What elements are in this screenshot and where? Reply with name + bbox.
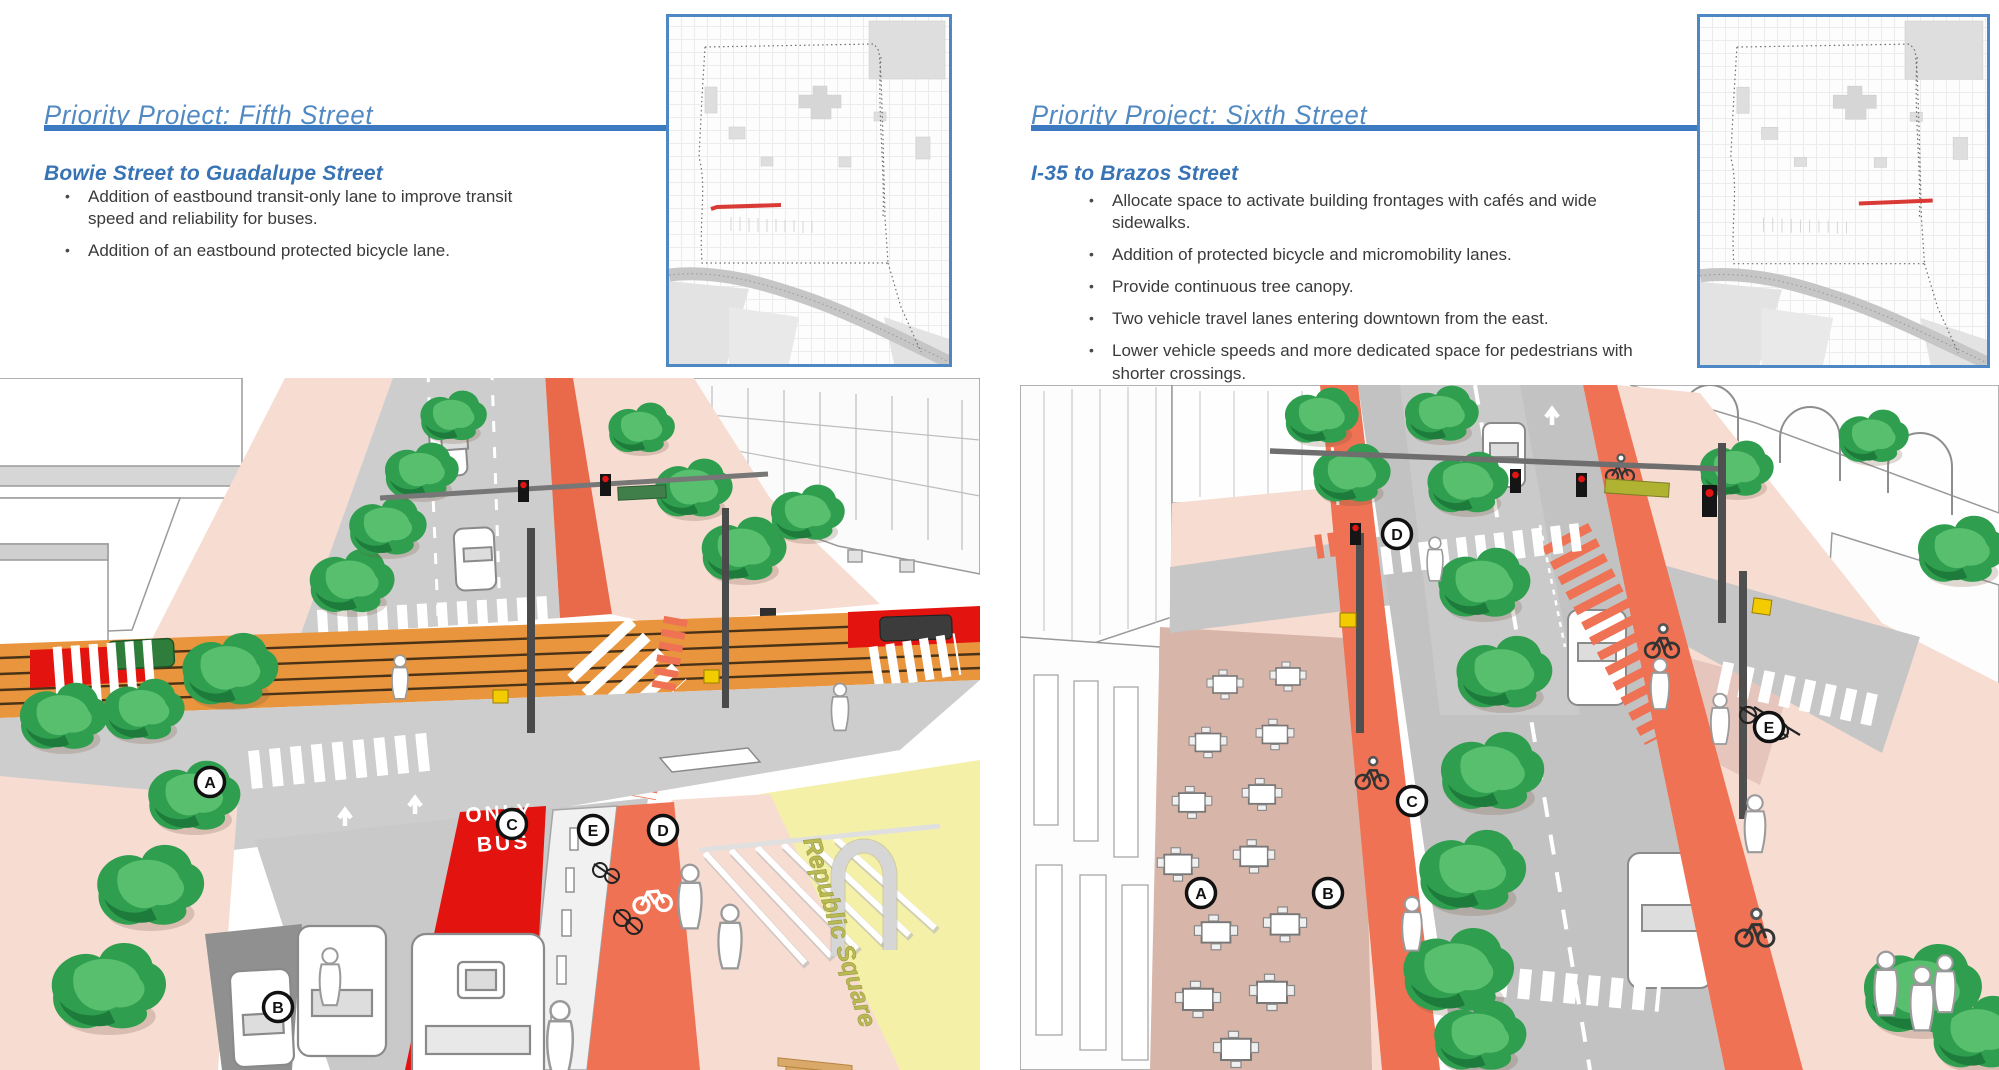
map-graphic [1700,17,1987,365]
panel-subtitle: I-35 to Brazos Street [1031,162,1238,186]
signal-yellow-box [493,690,508,703]
badge-a: A [196,768,225,797]
context-map-sixth [1697,14,1990,368]
badge-a: A [1187,879,1216,908]
signal-yellow-box [704,670,719,683]
street-name-sign [618,485,667,500]
svg-text:D: D [657,823,669,840]
signal-pole [722,508,729,708]
map-street-ticks [731,217,812,233]
svg-text:D: D [1391,527,1403,544]
map-river [1700,274,1987,365]
bullet-item: Addition of an eastbound protected bicyc… [56,240,561,262]
illustration-sixth-street: D C A B E [1020,385,1999,1070]
svg-text:A: A [204,775,216,792]
badge-b: B [1314,879,1343,908]
document-page: Priority Project: Fifth Street Bowie Str… [0,0,1999,1070]
context-map-fifth [666,14,952,367]
badge-c: C [498,810,527,839]
signal-yellow-box [1340,613,1356,627]
badge-e: E [1755,713,1784,742]
bullet-item: Addition of protected bicycle and microm… [1080,244,1655,266]
signal-pole [527,528,535,733]
bullet-item: Addition of eastbound transit-only lane … [56,186,561,230]
signal-pole [1739,571,1747,819]
bullet-item: Allocate space to activate building fron… [1080,190,1655,234]
badge-d: D [649,816,678,845]
bullet-item: Lower vehicle speeds and more dedicated … [1080,340,1655,384]
badge-d: D [1383,520,1412,549]
map-blocks [705,21,945,167]
svg-text:A: A [1195,886,1207,903]
svg-text:E: E [588,823,599,840]
map-street-ticks [1764,218,1847,234]
badge-e: E [579,816,608,845]
badge-b: B [264,993,293,1022]
svg-text:C: C [1406,794,1418,811]
svg-text:E: E [1764,720,1775,737]
svg-text:B: B [1322,886,1334,903]
bullet-list: Allocate space to activate building fron… [1080,190,1655,395]
bullet-list: Addition of eastbound transit-only lane … [56,186,561,272]
title-rule [1031,125,1697,131]
map-blocks [1737,21,1983,167]
project-extent-line [711,205,781,209]
svg-text:B: B [272,1000,284,1017]
bullet-item: Two vehicle travel lanes entering downto… [1080,308,1655,330]
svg-text:C: C [506,817,518,834]
map-graphic [669,17,949,364]
bullet-item: Provide continuous tree canopy. [1080,276,1655,298]
badge-c: C [1398,787,1427,816]
title-rule [44,125,666,131]
illustration-fifth-street: ONLY BUS [0,378,980,1070]
signal-yellow-box [1752,598,1772,615]
panel-subtitle: Bowie Street to Guadalupe Street [44,162,383,186]
signal-pole [1356,533,1364,733]
map-river [669,274,949,364]
signal-pole [1718,443,1726,623]
bus-on-corridor [107,638,174,669]
